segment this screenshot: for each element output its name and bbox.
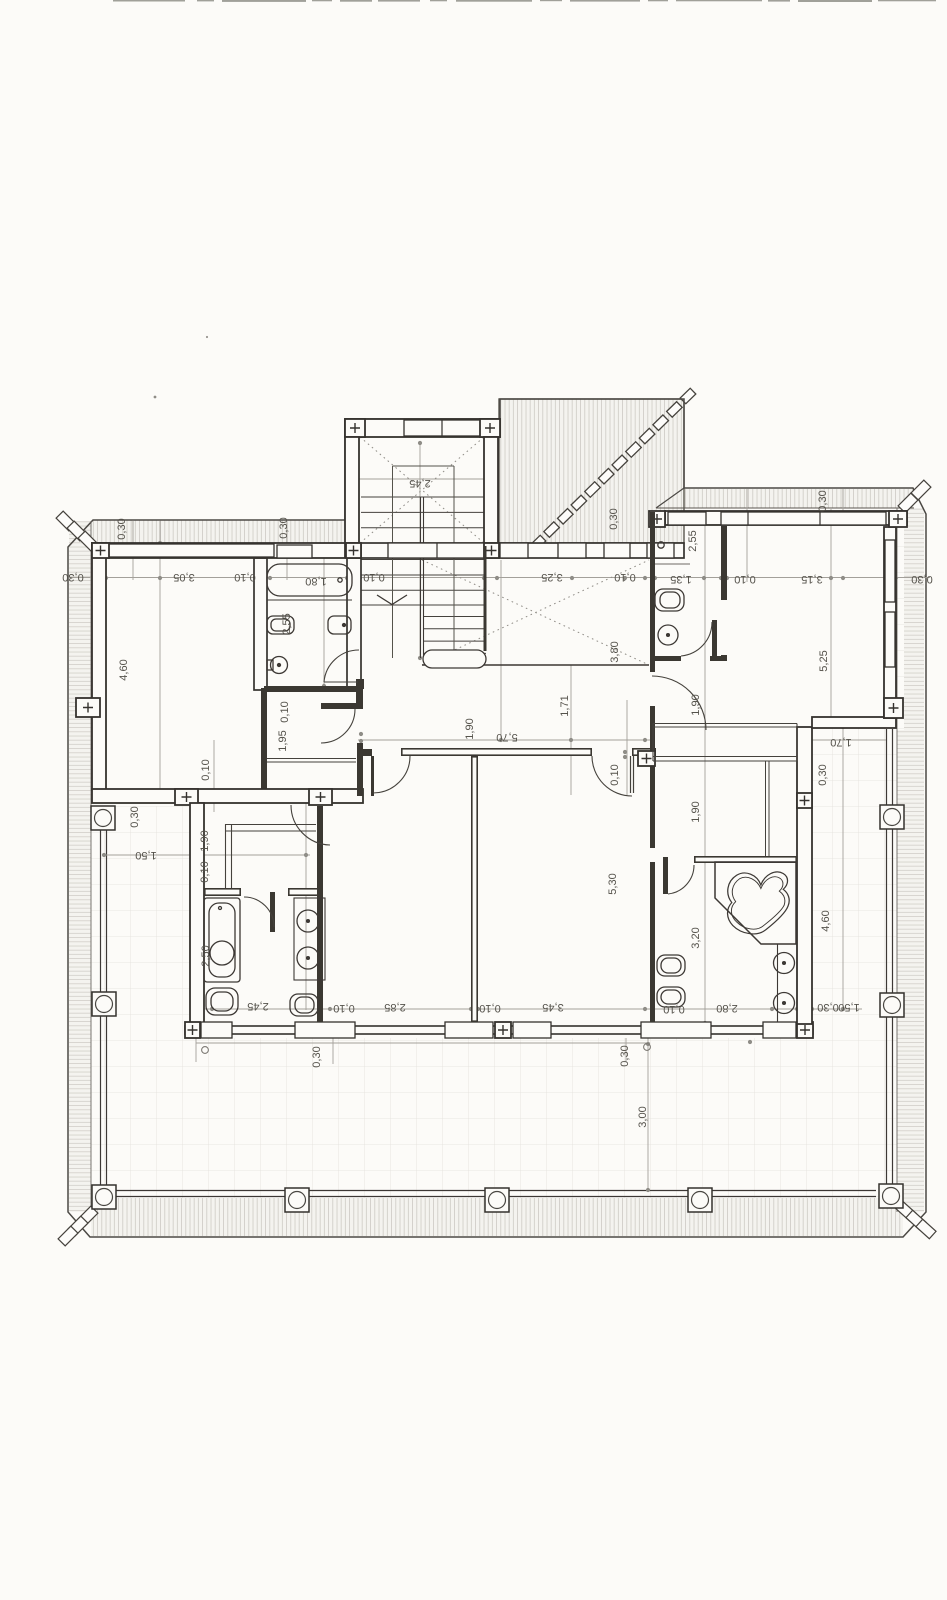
svg-text:0,10: 0,10 <box>200 759 212 780</box>
svg-text:1,71: 1,71 <box>559 695 571 716</box>
svg-text:0,30: 0,30 <box>116 518 128 539</box>
svg-text:1,50: 1,50 <box>838 1001 859 1013</box>
svg-text:3,05: 3,05 <box>173 571 194 583</box>
svg-text:1,70: 1,70 <box>830 736 851 748</box>
svg-text:0,30: 0,30 <box>311 1046 323 1067</box>
svg-text:1,90: 1,90 <box>690 694 702 715</box>
svg-text:0,30: 0,30 <box>278 517 290 538</box>
svg-text:3,80: 3,80 <box>609 641 621 662</box>
svg-text:4,60: 4,60 <box>820 910 832 931</box>
svg-text:0,30: 0,30 <box>619 1045 631 1066</box>
svg-text:0,10: 0,10 <box>363 571 384 583</box>
svg-text:1,80: 1,80 <box>305 575 326 587</box>
svg-text:3,45: 3,45 <box>542 1001 563 1013</box>
svg-text:3,20: 3,20 <box>690 927 702 948</box>
svg-text:5,70: 5,70 <box>496 731 517 743</box>
svg-text:2,55: 2,55 <box>281 613 293 634</box>
svg-text:3,15: 3,15 <box>801 573 822 585</box>
svg-text:1,95: 1,95 <box>277 730 289 751</box>
svg-text:1,90: 1,90 <box>199 830 211 851</box>
svg-text:0,30: 0,30 <box>911 573 932 585</box>
svg-text:0,10: 0,10 <box>479 1002 500 1014</box>
svg-text:3,25: 3,25 <box>541 571 562 583</box>
svg-text:3,00: 3,00 <box>637 1106 649 1127</box>
svg-text:1,35: 1,35 <box>670 573 691 585</box>
svg-text:0,30: 0,30 <box>817 764 829 785</box>
svg-text:5,25: 5,25 <box>818 650 830 671</box>
svg-text:2,45: 2,45 <box>247 1000 268 1012</box>
svg-text:0,30: 0,30 <box>608 508 620 529</box>
svg-text:0,10: 0,10 <box>734 573 755 585</box>
svg-text:2,50: 2,50 <box>200 945 212 966</box>
svg-text:2,45: 2,45 <box>409 477 430 489</box>
svg-text:2,85: 2,85 <box>384 1001 405 1013</box>
svg-text:1,90: 1,90 <box>464 718 476 739</box>
svg-text:0,10: 0,10 <box>279 701 291 722</box>
svg-text:4,60: 4,60 <box>118 659 130 680</box>
svg-text:2,80: 2,80 <box>716 1002 737 1014</box>
svg-text:0,10: 0,10 <box>663 1003 684 1015</box>
svg-text:0,10: 0,10 <box>333 1002 354 1014</box>
svg-text:0,10: 0,10 <box>614 571 635 583</box>
svg-text:5,30: 5,30 <box>607 873 619 894</box>
svg-text:0,30: 0,30 <box>62 571 83 583</box>
svg-text:0,30: 0,30 <box>129 806 141 827</box>
svg-text:1,90: 1,90 <box>690 801 702 822</box>
svg-text:0,30: 0,30 <box>817 1001 838 1013</box>
svg-text:2,55: 2,55 <box>687 530 699 551</box>
svg-text:1,50: 1,50 <box>135 849 156 861</box>
svg-text:0,30: 0,30 <box>817 490 829 511</box>
svg-text:0,10: 0,10 <box>199 861 211 882</box>
svg-text:0,10: 0,10 <box>234 571 255 583</box>
svg-text:0,10: 0,10 <box>609 764 621 785</box>
